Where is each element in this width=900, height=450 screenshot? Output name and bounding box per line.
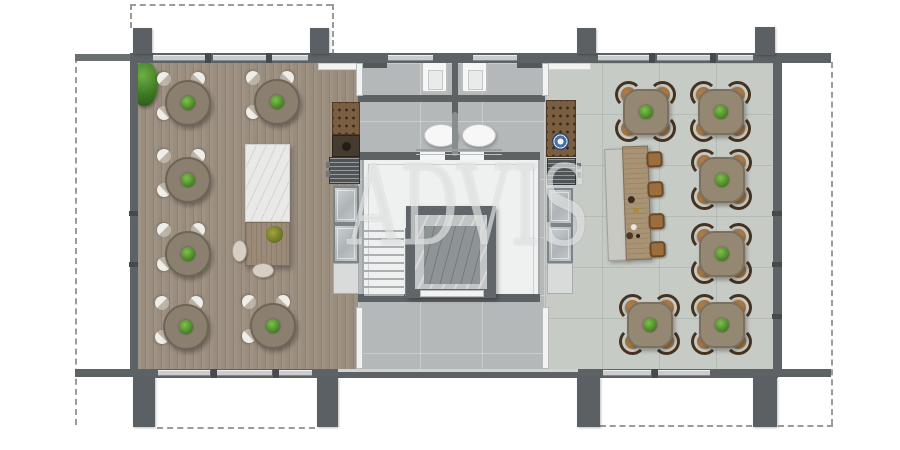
island-marble-top — [245, 144, 290, 222]
wall-joint — [129, 262, 138, 267]
square-table-group — [618, 293, 682, 357]
canopy-outline-left — [130, 4, 132, 28]
elevator-door — [420, 290, 484, 297]
square-table-group — [690, 293, 754, 357]
round-table-group — [156, 148, 220, 212]
communal-table-group — [602, 145, 670, 263]
table-plant — [181, 247, 195, 261]
wall-bottom-right-extension — [777, 369, 831, 377]
door-frame — [356, 63, 363, 96]
stair-tread — [364, 294, 404, 296]
window-mullion — [205, 53, 211, 63]
round-table-group — [245, 70, 309, 134]
square-table-group — [689, 80, 753, 144]
window-segment — [657, 55, 712, 61]
structural-column — [577, 377, 600, 427]
round-table-group — [156, 222, 220, 286]
dining-chair-white — [242, 295, 256, 309]
round-table-group — [241, 294, 305, 358]
wall-joint — [772, 262, 782, 267]
table-plant — [266, 319, 280, 333]
window-mullion — [649, 53, 655, 63]
table-plant — [270, 95, 284, 109]
bar-stool — [646, 151, 663, 168]
wc-basin-right — [461, 60, 488, 93]
window-segment — [272, 55, 308, 61]
wall-bottom-center-glass-edge — [338, 369, 578, 372]
window-segment — [603, 370, 651, 376]
wall-joint — [772, 314, 782, 319]
basin-bowl — [428, 70, 443, 90]
window-segment — [473, 55, 517, 61]
round-table-group — [156, 71, 220, 135]
canopy-outline-right — [332, 4, 334, 55]
window-segment — [214, 370, 272, 376]
terrace-outline-bottom-left — [157, 427, 315, 429]
dining-chair-white — [246, 71, 260, 85]
window-segment — [718, 55, 753, 61]
window-mullion — [710, 53, 716, 63]
window-segment — [213, 55, 267, 61]
window-segment — [598, 55, 651, 61]
bar-stool — [649, 241, 666, 258]
window-mullion — [211, 369, 217, 378]
window-counter-left — [318, 63, 361, 70]
table-plant — [179, 320, 193, 334]
dining-chair-white — [157, 72, 171, 86]
stair-tread — [364, 278, 404, 280]
window-segment — [158, 370, 210, 376]
square-table-group — [690, 148, 754, 212]
structural-column — [310, 28, 329, 54]
table-plant — [715, 247, 729, 261]
wine-rack-left — [332, 102, 360, 135]
window-mullion — [273, 369, 279, 378]
table-plant — [181, 173, 195, 187]
structural-column — [577, 28, 596, 54]
floor-plan-canvas: ADVIS — [0, 0, 900, 450]
dining-chair-white — [157, 223, 171, 237]
table-plant — [715, 173, 729, 187]
door-frame — [356, 307, 363, 369]
appliance-handle — [326, 162, 330, 168]
window-segment — [656, 370, 710, 376]
stair-tread — [364, 286, 404, 288]
wall-joint — [129, 211, 138, 216]
appliance-handle — [326, 171, 330, 177]
terrace-outline-bottom-right — [600, 425, 752, 427]
wc-cross-wall — [358, 95, 545, 102]
wc-basin-left — [421, 60, 448, 93]
table-plant — [643, 318, 657, 332]
window-segment — [277, 370, 312, 376]
island-chair — [232, 240, 247, 262]
terrace-outline-bottom-right-2 — [778, 425, 833, 427]
door-frame — [542, 63, 549, 96]
table-plant — [715, 318, 729, 332]
canopy-outline-top — [130, 4, 332, 6]
structural-column — [753, 377, 777, 427]
structural-column — [133, 377, 155, 427]
dining-chair-white — [157, 149, 171, 163]
basin-bowl — [468, 70, 483, 90]
dining-chair-white — [155, 296, 169, 310]
window-counter-right — [543, 63, 591, 70]
window-segment — [388, 55, 433, 61]
watermark: ADVIS — [347, 153, 563, 263]
table-plant — [639, 105, 653, 119]
island-chair — [252, 263, 274, 278]
window-mullion — [266, 53, 272, 63]
wall-top-left-extension — [75, 54, 133, 61]
window-segment — [153, 55, 207, 61]
table-plant — [181, 96, 195, 110]
structural-column — [755, 27, 775, 55]
round-table-group — [154, 295, 218, 359]
door-frame — [542, 307, 549, 369]
window-mullion — [652, 369, 658, 378]
bar-stool — [648, 213, 665, 230]
square-table-group — [614, 80, 678, 144]
structural-column — [133, 28, 152, 54]
wall-bottom-left-extension — [75, 369, 133, 377]
table-plant — [714, 105, 728, 119]
structural-column — [317, 377, 338, 427]
wall-joint — [772, 211, 782, 216]
bar-stool — [647, 181, 664, 198]
square-table-group — [690, 222, 754, 286]
terrace-outline-right — [831, 62, 833, 425]
